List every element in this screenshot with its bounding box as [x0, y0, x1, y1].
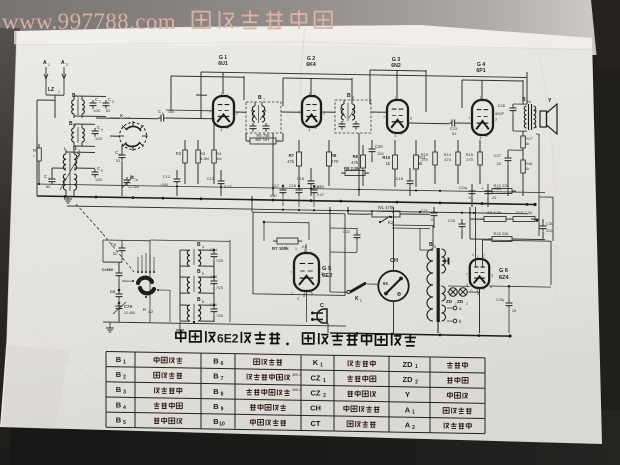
svg-text:12-465: 12-465 — [124, 311, 135, 315]
svg-text:6: 6 — [119, 153, 121, 157]
svg-text:R10: R10 — [382, 155, 390, 160]
svg-text:470: 470 — [444, 157, 451, 162]
svg-text:A: A — [405, 420, 411, 429]
svg-text:2: 2 — [360, 299, 362, 303]
svg-text:W1 470k: W1 470k — [378, 205, 395, 210]
svg-text:8: 8 — [221, 391, 224, 397]
svg-text:C24: C24 — [459, 185, 467, 190]
svg-text:CZ: CZ — [311, 373, 321, 382]
svg-text:4: 4 — [202, 245, 204, 249]
svg-text:270: 270 — [421, 157, 428, 162]
svg-text:3: 3 — [495, 118, 497, 122]
svg-text:C9: C9 — [110, 289, 116, 294]
svg-text:0.47: 0.47 — [224, 184, 233, 189]
svg-text:1: 1 — [415, 364, 418, 370]
svg-text:1: 1 — [323, 378, 326, 384]
svg-text:1: 1 — [295, 247, 297, 251]
svg-text:20: 20 — [492, 196, 496, 200]
svg-text:7: 7 — [221, 376, 224, 382]
svg-text:1/20: 1/20 — [95, 178, 102, 182]
svg-text:5: 5 — [311, 292, 313, 296]
svg-text:3: 3 — [123, 390, 126, 396]
svg-text:C7A: C7A — [124, 304, 132, 309]
svg-text:B: B — [197, 242, 201, 248]
svg-text:2: 2 — [66, 63, 68, 67]
svg-text:+: + — [481, 186, 484, 191]
svg-text:C27: C27 — [494, 153, 502, 158]
svg-text:600P: 600P — [495, 112, 504, 116]
svg-text:1: 1 — [58, 90, 60, 94]
svg-text:R7: R7 — [289, 153, 295, 158]
svg-text:270: 270 — [331, 159, 339, 164]
svg-text:4: 4 — [303, 294, 305, 298]
svg-text:222: 222 — [546, 229, 552, 233]
svg-text:6Z4: 6Z4 — [499, 275, 510, 281]
svg-text:1: 1 — [48, 63, 50, 67]
svg-text:B: B — [213, 372, 219, 381]
svg-text:1/20: 1/20 — [93, 109, 100, 113]
svg-text:1k: 1k — [525, 141, 529, 146]
svg-text:G 5: G 5 — [322, 266, 332, 272]
svg-text:5: 5 — [227, 126, 229, 130]
svg-text:20: 20 — [497, 161, 502, 166]
svg-text:7/25: 7/25 — [216, 314, 223, 318]
svg-text:Cx560: Cx560 — [102, 268, 113, 272]
svg-text:20: 20 — [512, 309, 516, 313]
svg-text:B: B — [116, 400, 122, 409]
svg-text:W2 1.5k: W2 1.5k — [487, 210, 502, 215]
svg-text:5: 5 — [315, 126, 317, 130]
svg-text:60: 60 — [106, 109, 110, 113]
svg-text:5: 5 — [101, 169, 103, 173]
svg-text:4: 4 — [123, 405, 126, 411]
svg-text:4: 4 — [101, 128, 103, 132]
svg-text:150: 150 — [168, 110, 174, 114]
svg-text:4: 4 — [480, 136, 482, 140]
svg-text:4: 4 — [221, 128, 223, 132]
svg-text:1k: 1k — [525, 166, 529, 171]
svg-text:Y: Y — [548, 98, 552, 104]
svg-text:1M: 1M — [216, 156, 222, 161]
svg-text:3: 3 — [291, 292, 293, 296]
svg-text:ZD: ZD — [446, 299, 453, 304]
svg-text:K: K — [355, 296, 359, 302]
svg-text:1-2: 1-2 — [148, 310, 153, 314]
svg-text:C22: C22 — [343, 229, 351, 234]
svg-text:1: 1 — [320, 363, 323, 369]
svg-text:C6: C6 — [111, 242, 117, 247]
svg-text:60: 60 — [46, 185, 50, 189]
svg-text:B: B — [213, 387, 219, 396]
svg-text:C30: C30 — [546, 221, 554, 226]
svg-text:CT: CT — [311, 419, 321, 428]
svg-text:C19: C19 — [317, 185, 324, 189]
svg-text:R8: R8 — [331, 153, 337, 158]
svg-text:3: 3 — [491, 274, 493, 278]
svg-text:9: 9 — [434, 245, 436, 249]
svg-text:C15: C15 — [297, 176, 305, 181]
svg-text:1/20: 1/20 — [95, 137, 102, 141]
svg-text:3: 3 — [112, 100, 114, 104]
svg-text:C29: C29 — [496, 297, 504, 302]
svg-text:6N2: 6N2 — [391, 63, 401, 69]
svg-text:5: 5 — [483, 287, 485, 291]
svg-text:51: 51 — [113, 252, 117, 256]
svg-text:K: K — [313, 358, 319, 367]
svg-text:8.2M: 8.2M — [200, 156, 209, 161]
svg-text:R19 2.2k: R19 2.2k — [516, 210, 532, 215]
svg-text:4: 4 — [477, 292, 479, 296]
svg-text:1: 1 — [33, 154, 35, 158]
svg-text:6E2: 6E2 — [322, 273, 332, 279]
svg-text:7/25: 7/25 — [216, 259, 223, 263]
svg-text:B: B — [116, 370, 122, 379]
svg-text:C26: C26 — [498, 103, 506, 108]
svg-text:0.47: 0.47 — [317, 193, 324, 197]
svg-text:6: 6 — [401, 98, 403, 102]
svg-text:A: A — [405, 405, 411, 414]
svg-text:B: B — [197, 269, 201, 275]
svg-text:C20: C20 — [375, 144, 383, 149]
svg-text:1: 1 — [412, 410, 415, 416]
svg-text:R9: R9 — [353, 154, 359, 159]
svg-text:1: 1 — [477, 255, 479, 259]
svg-text:465-2: 465-2 — [292, 388, 301, 392]
svg-text:A: A — [43, 60, 47, 66]
svg-text:2: 2 — [323, 393, 326, 399]
svg-text:8: 8 — [162, 112, 164, 116]
svg-text:6: 6 — [221, 361, 224, 367]
svg-text:www.997788.com: www.997788.com — [2, 9, 176, 34]
svg-text:6K4: 6K4 — [306, 62, 316, 68]
svg-text:C: C — [97, 125, 100, 130]
svg-text:51: 51 — [452, 132, 456, 136]
svg-text:1: 1 — [48, 177, 50, 181]
svg-text:C21: C21 — [421, 208, 429, 213]
svg-text:2: 2 — [99, 100, 101, 104]
svg-text:7: 7 — [483, 254, 485, 258]
svg-text:1: 1 — [472, 253, 474, 257]
svg-text:2: 2 — [412, 425, 415, 431]
svg-text:B: B — [258, 95, 262, 101]
svg-text:CZ: CZ — [311, 389, 321, 398]
svg-text:51: 51 — [116, 159, 120, 163]
svg-text:C13: C13 — [207, 176, 215, 181]
svg-text:7: 7 — [466, 273, 468, 277]
svg-text:8: 8 — [352, 96, 354, 100]
svg-text:3: 3 — [466, 283, 468, 287]
svg-text:C: C — [115, 150, 118, 155]
svg-text:ZD: ZD — [403, 360, 414, 369]
svg-text:2,6: 2,6 — [302, 245, 307, 249]
svg-text:47k: 47k — [351, 160, 359, 165]
svg-text:3: 3 — [410, 117, 412, 121]
svg-text:1: 1 — [221, 92, 223, 96]
svg-text:4: 4 — [309, 128, 311, 132]
svg-text:Y: Y — [405, 390, 410, 399]
svg-text:6E2: 6E2 — [217, 331, 239, 345]
svg-text:1: 1 — [123, 359, 126, 365]
svg-text:C12: C12 — [163, 174, 171, 179]
svg-text:5: 5 — [202, 272, 204, 276]
svg-text:7/25: 7/25 — [216, 286, 223, 290]
svg-text:6: 6 — [310, 251, 312, 255]
svg-text:10: 10 — [219, 422, 225, 428]
svg-text:47k: 47k — [287, 159, 295, 164]
svg-text:B: B — [69, 121, 73, 127]
svg-text:B: B — [429, 242, 433, 248]
svg-text:ZD: ZD — [403, 375, 414, 384]
svg-text:G 6: G 6 — [499, 268, 508, 274]
svg-text:6X: 6X — [383, 281, 388, 286]
svg-text:B: B — [213, 402, 219, 411]
svg-text:R7 100k: R7 100k — [272, 246, 289, 251]
svg-text:C18: C18 — [289, 184, 296, 188]
svg-text:C: C — [95, 97, 98, 102]
svg-text:C26: C26 — [494, 186, 502, 191]
svg-text:7: 7 — [263, 98, 265, 102]
svg-text:B: B — [116, 385, 122, 394]
svg-text:7: 7 — [468, 117, 470, 121]
svg-text:1: 1 — [304, 249, 306, 253]
svg-text:1: 1 — [480, 96, 482, 100]
svg-text:B: B — [116, 355, 122, 364]
svg-text:6: 6 — [227, 94, 229, 98]
svg-text:5: 5 — [486, 134, 488, 138]
svg-text:6: 6 — [486, 98, 488, 102]
svg-text:2: 2 — [415, 379, 418, 385]
svg-text:B: B — [213, 357, 219, 366]
svg-text:CH: CH — [310, 404, 321, 413]
svg-text:B: B — [116, 416, 122, 425]
svg-text:1: 1 — [395, 96, 397, 100]
svg-text:2: 2 — [123, 374, 126, 380]
svg-text:0.47: 0.47 — [270, 194, 277, 198]
svg-text:5: 5 — [490, 285, 492, 289]
svg-text:C: C — [44, 174, 47, 179]
svg-text:R: R — [33, 148, 36, 153]
svg-text:2: 2 — [466, 302, 468, 306]
svg-text:C23: C23 — [450, 126, 458, 131]
svg-text:R18 22k: R18 22k — [494, 231, 509, 236]
svg-text:6P1: 6P1 — [476, 68, 485, 74]
svg-text:R2: R2 — [176, 151, 182, 156]
svg-text:7: 7 — [290, 271, 292, 275]
svg-text:6: 6 — [315, 94, 317, 98]
svg-text:5: 5 — [401, 132, 403, 136]
svg-text:C: C — [158, 109, 161, 114]
svg-text:4: 4 — [395, 134, 397, 138]
svg-text:C: C — [320, 303, 324, 309]
svg-text:B: B — [347, 93, 351, 99]
svg-text:LZ: LZ — [48, 87, 54, 93]
svg-text:C17: C17 — [272, 184, 279, 188]
svg-text:B: B — [197, 297, 201, 303]
svg-text:A: A — [61, 60, 65, 66]
svg-text:465-1: 465-1 — [292, 373, 301, 377]
svg-text:6U1: 6U1 — [218, 61, 228, 67]
svg-text:C16: C16 — [396, 176, 404, 181]
svg-text:1: 1 — [309, 92, 311, 96]
svg-text:10: 10 — [527, 100, 531, 104]
svg-text:ZD: ZD — [457, 299, 464, 304]
svg-text:5: 5 — [123, 420, 126, 426]
svg-text:465 75H: 465 75H — [255, 138, 270, 142]
svg-text:C: C — [97, 166, 100, 171]
svg-text:C: C — [108, 97, 111, 102]
svg-text:270: 270 — [466, 157, 473, 162]
svg-text:R8 2.2M: R8 2.2M — [344, 166, 360, 171]
svg-text:9: 9 — [221, 407, 224, 413]
svg-text:C25: C25 — [448, 218, 456, 223]
svg-text:7: 7 — [383, 116, 385, 120]
svg-text:6: 6 — [202, 300, 204, 304]
